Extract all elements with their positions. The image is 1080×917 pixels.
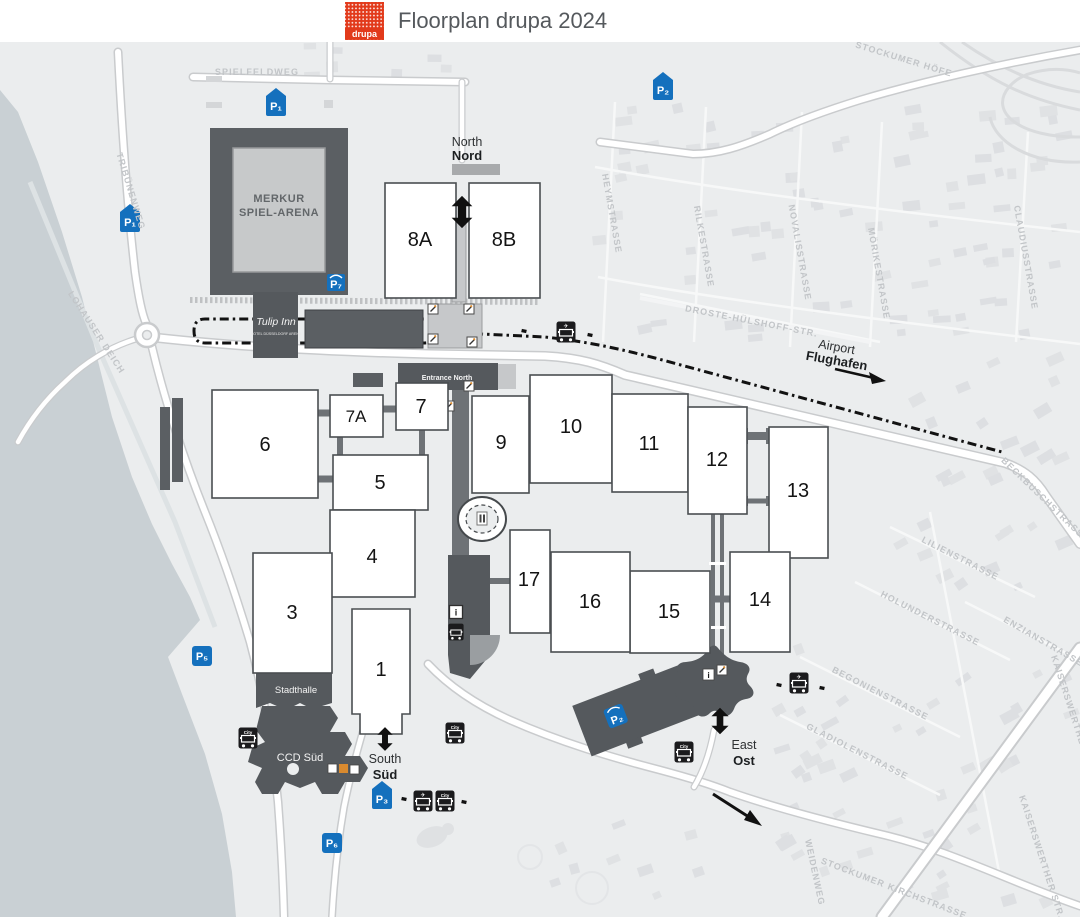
svg-text:✈: ✈ (796, 674, 801, 681)
svg-text:13: 13 (787, 480, 809, 502)
residential-building (592, 235, 606, 246)
residential-building (902, 200, 920, 212)
north-entrance-bar (452, 164, 500, 175)
svg-text:SPIELFELDWEG: SPIELFELDWEG (215, 67, 299, 77)
residential-building (333, 47, 343, 54)
city-bus-icon[interactable]: City (675, 742, 694, 763)
shuttle-bus-icon[interactable]: ✈ (790, 673, 809, 694)
svg-text:✈: ✈ (563, 323, 568, 330)
svg-text:P₅: P₅ (196, 651, 208, 663)
svg-text:11: 11 (639, 433, 660, 455)
svg-text:South: South (369, 752, 402, 766)
svg-text:Ost: Ost (733, 753, 755, 768)
svg-text:4: 4 (366, 546, 377, 568)
svg-text:7: 7 (415, 396, 426, 418)
service-building (305, 310, 423, 348)
svg-text:City: City (451, 725, 460, 730)
tribune-structure (160, 407, 170, 490)
residential-building (897, 329, 906, 337)
residential-building (1048, 115, 1058, 125)
ccd-label: CCD Süd (277, 752, 323, 764)
svg-text:15: 15 (658, 601, 680, 623)
residential-building (1030, 162, 1045, 172)
shuttle-stop-icon[interactable] (448, 624, 463, 641)
arena-label: SPIEL-ARENA (239, 207, 319, 219)
hotel-name: Tulip Inn (256, 316, 296, 328)
city-bus-icon[interactable]: City (436, 791, 455, 812)
floorplan-page: drupa Floorplan drupa 2024 (0, 0, 1080, 917)
residential-building (627, 106, 637, 115)
residential-building (684, 275, 696, 285)
residential-building (1007, 168, 1016, 179)
merkur-spiel-arena[interactable]: MERKUR SPIEL-ARENA (210, 128, 348, 295)
city-bus-icon[interactable]: City (446, 723, 465, 744)
svg-text:8B: 8B (492, 229, 516, 251)
svg-text:8A: 8A (408, 229, 433, 251)
bus-loop (458, 497, 506, 541)
svg-text:City: City (441, 793, 450, 798)
residential-building (748, 334, 763, 343)
residential-building (304, 43, 317, 50)
svg-text:P₂: P₂ (657, 85, 669, 97)
north-gate-plaza (428, 304, 482, 348)
parking-p5-icon[interactable]: P₅ (192, 646, 212, 666)
shuttle-bus-icon[interactable]: ✈ (414, 791, 433, 812)
info-point-icon[interactable]: i (450, 606, 463, 619)
svg-text:P₃: P₃ (376, 794, 388, 806)
svg-text:5: 5 (374, 472, 385, 494)
map-canvas[interactable]: MERKUR SPIEL-ARENA Tulip Inn HOTEL DÜSSE… (0, 42, 1080, 917)
residential-building (928, 309, 939, 317)
arena-label: MERKUR (253, 193, 304, 205)
svg-text:9: 9 (495, 432, 506, 454)
hotel-subtitle: HOTEL DÜSSELDORF ARENA (251, 332, 302, 336)
svg-text:East: East (731, 738, 757, 752)
svg-text:North: North (452, 135, 483, 149)
residential-building (1002, 248, 1014, 257)
svg-text:i: i (455, 608, 458, 618)
svg-text:17: 17 (518, 569, 540, 591)
svg-text:14: 14 (749, 589, 771, 611)
residential-building (933, 315, 951, 323)
svg-text:P₇: P₇ (330, 279, 342, 291)
header: drupa Floorplan drupa 2024 (0, 0, 1080, 42)
info-icon: i (707, 670, 709, 680)
residential-building (912, 122, 924, 130)
drupa-logo-text: drupa (345, 29, 384, 39)
svg-text:7A: 7A (346, 407, 367, 426)
residential-building (946, 181, 959, 192)
residential-building (748, 226, 760, 238)
svg-text:P₁: P₁ (270, 101, 282, 113)
parking-p7-icon[interactable]: P₇ (327, 274, 345, 291)
svg-text:3: 3 (286, 602, 297, 624)
residential-building (441, 65, 452, 73)
svg-text:City: City (680, 744, 689, 749)
residential-building (975, 154, 992, 163)
residential-building (992, 141, 1004, 154)
residential-building (979, 110, 996, 122)
svg-text:Nord: Nord (452, 148, 482, 163)
residential-building (929, 220, 938, 228)
svg-text:✈: ✈ (420, 792, 425, 799)
city-bus-icon[interactable]: City (239, 728, 258, 749)
drupa-logo-icon[interactable]: drupa (345, 2, 384, 40)
residential-building (391, 69, 402, 77)
parking-p6-icon[interactable]: P₆ (322, 833, 342, 853)
stadthalle-label: Stadthalle (275, 685, 317, 696)
svg-text:16: 16 (579, 591, 601, 613)
tulip-inn-hotel[interactable]: Tulip Inn HOTEL DÜSSELDORF ARENA (251, 292, 302, 358)
svg-text:Süd: Süd (373, 767, 398, 782)
svg-text:1: 1 (375, 659, 386, 681)
svg-text:6: 6 (259, 434, 270, 456)
residential-building (705, 209, 718, 217)
page-title: Floorplan drupa 2024 (398, 8, 607, 34)
shuttle-bus-icon[interactable]: ✈ (557, 322, 576, 343)
residential-building (771, 228, 784, 239)
tribune-structure (172, 398, 183, 482)
depot-building (353, 373, 383, 387)
residential-building (427, 55, 441, 62)
residential-building (760, 221, 771, 232)
residential-building (686, 247, 697, 255)
svg-text:P₆: P₆ (326, 838, 338, 850)
svg-text:City: City (244, 730, 253, 735)
svg-text:12: 12 (706, 449, 728, 471)
svg-text:10: 10 (560, 416, 582, 438)
residential-building (832, 140, 843, 152)
